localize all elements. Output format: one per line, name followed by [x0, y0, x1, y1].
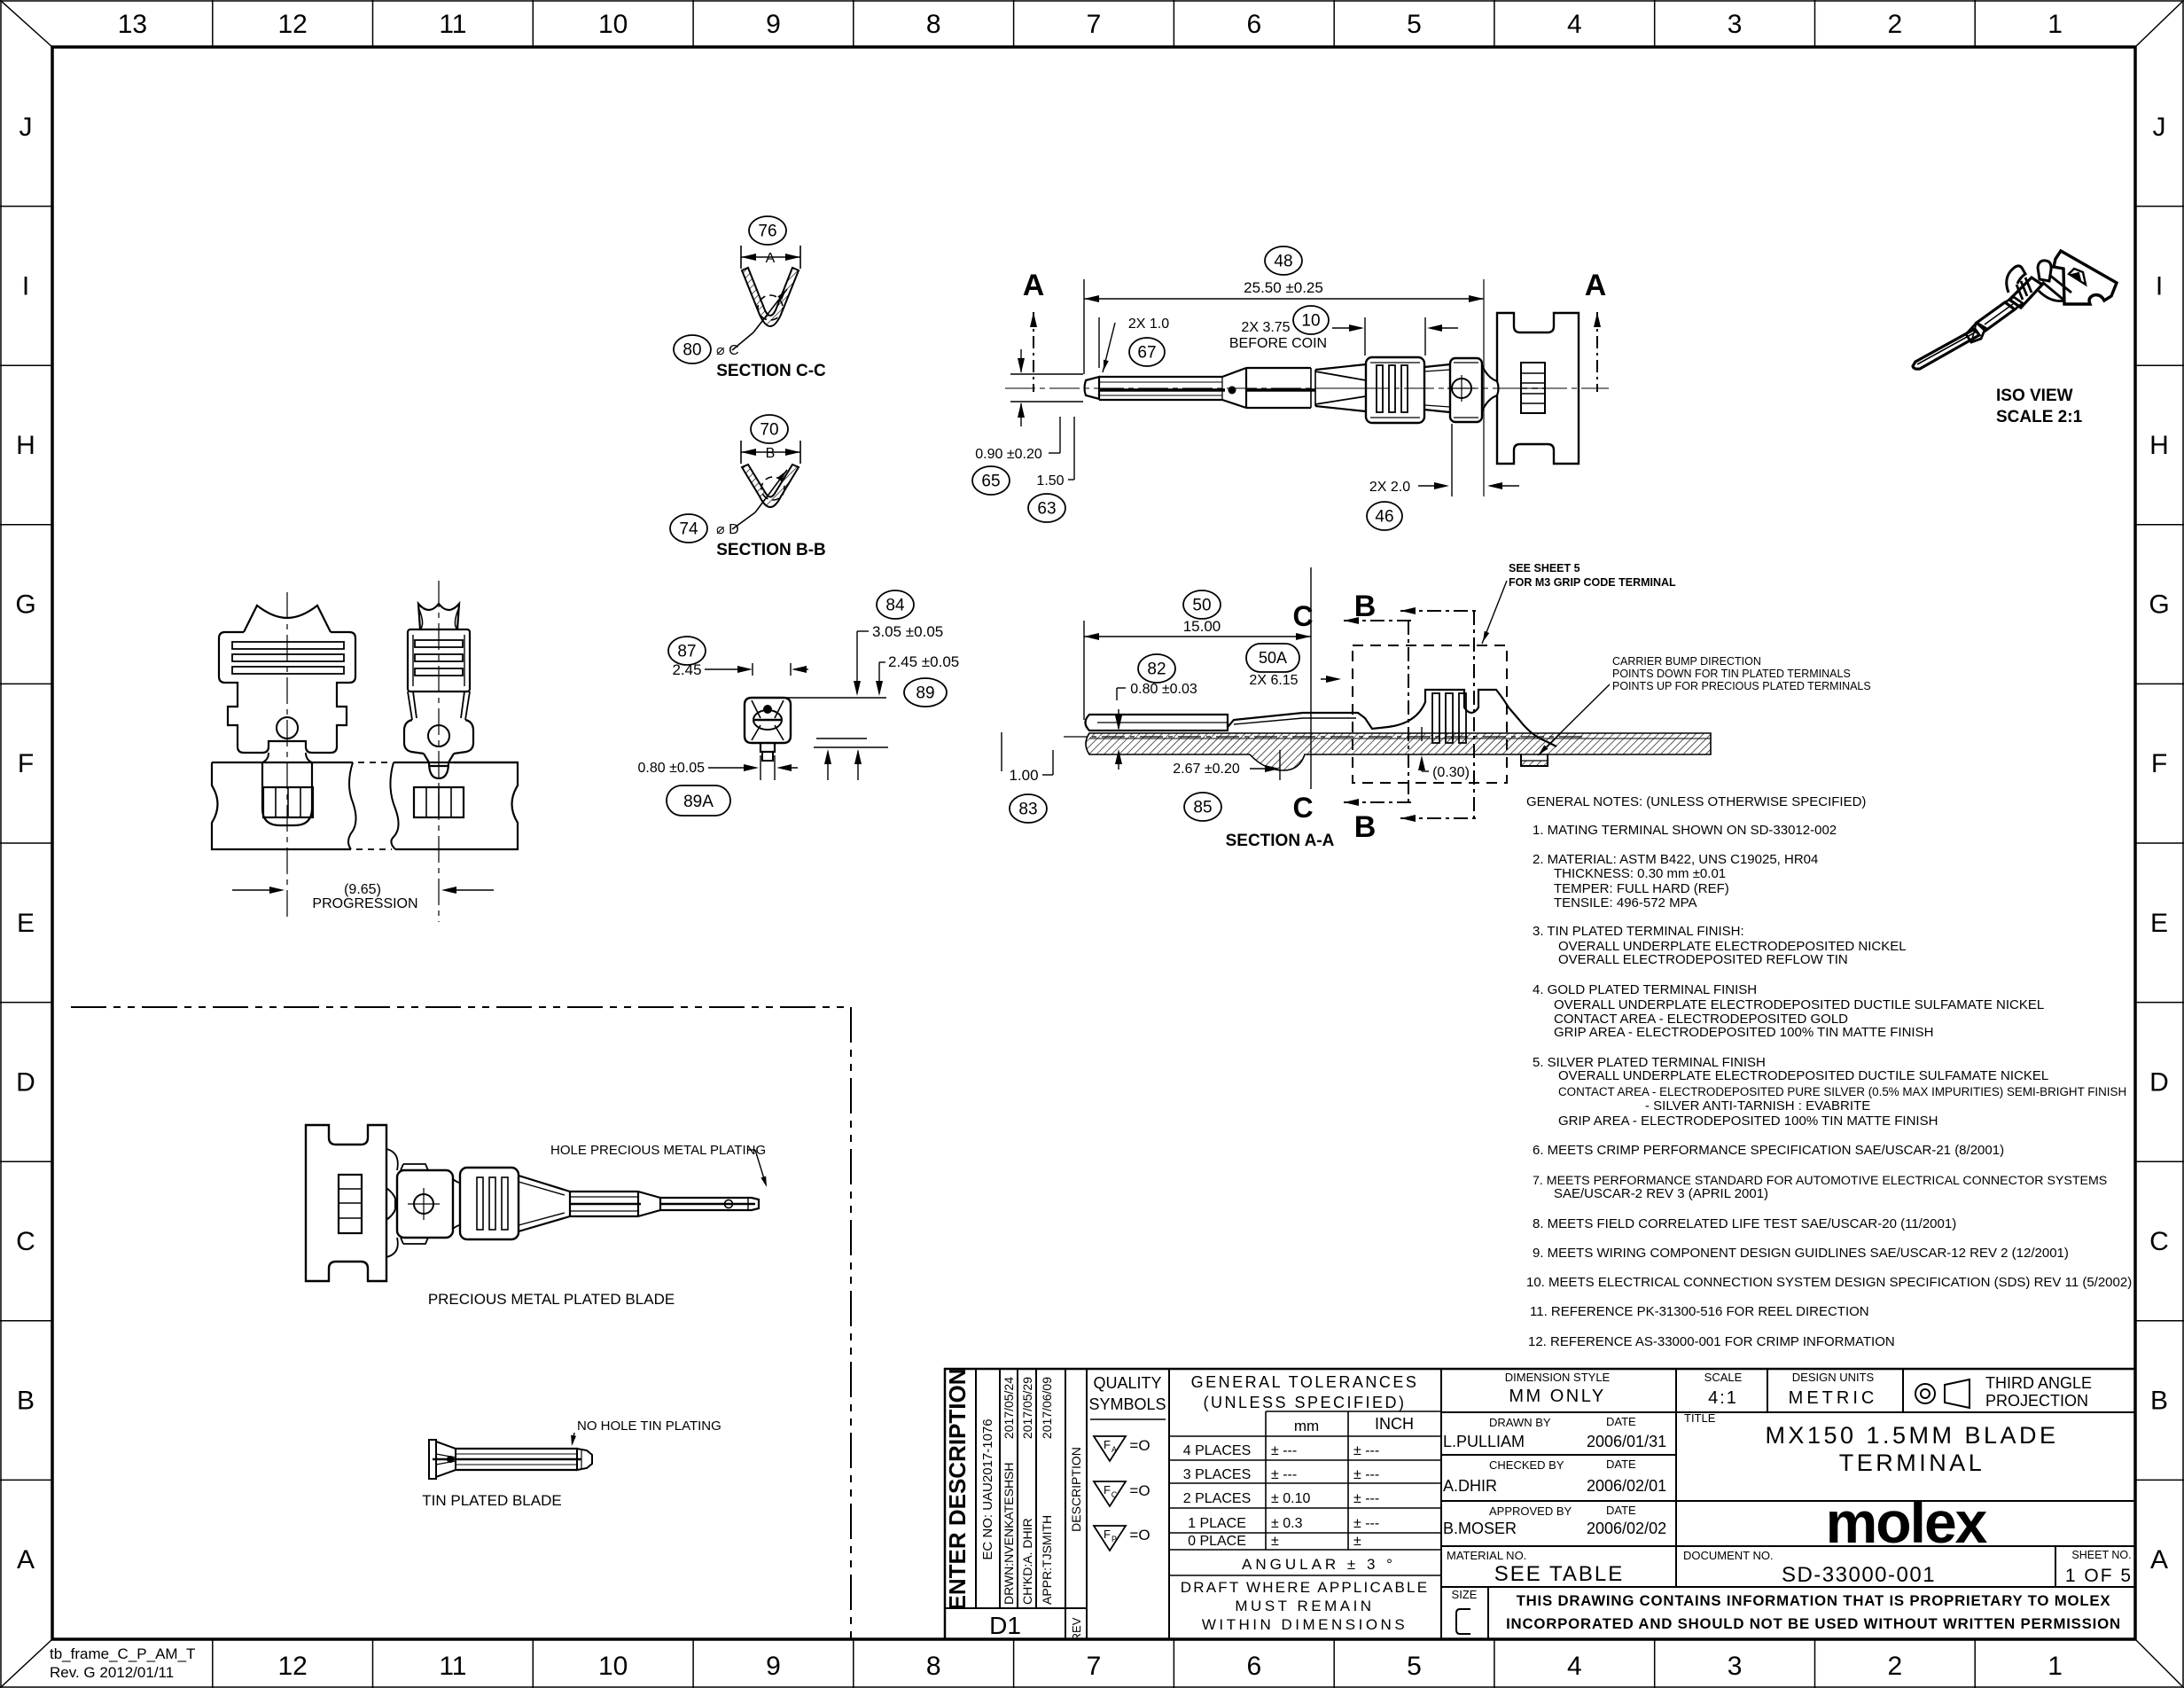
svg-text:H: H	[2149, 431, 2169, 460]
svg-text:D1: D1	[989, 1612, 1021, 1639]
svg-text:- SILVER ANTI-TARNISH : EVA: - SILVER ANTI-TARNISH : EVABRITE	[1645, 1098, 1870, 1114]
svg-text:DATE: DATE	[1606, 1457, 1636, 1471]
svg-text:11. REFERENCE PK-31300-516 FOR: 11. REFERENCE PK-31300-516 FOR REEL DIRE…	[1530, 1304, 1869, 1319]
svg-text:NO HOLE TIN PLATING: NO HOLE TIN PLATING	[577, 1418, 721, 1434]
svg-text:76: 76	[758, 223, 776, 241]
svg-text:2.45: 2.45	[672, 661, 701, 678]
svg-text:SECTION C-C: SECTION C-C	[716, 362, 826, 380]
svg-text:THIS DRAWING CONTAINS INFORMAT: THIS DRAWING CONTAINS INFORMATION THAT I…	[1517, 1592, 2111, 1609]
svg-text:⌀ D: ⌀ D	[716, 522, 739, 537]
svg-text:7: 7	[1087, 10, 1102, 39]
svg-text:DRAWN BY: DRAWN BY	[1489, 1416, 1551, 1429]
svg-text:65: 65	[981, 473, 1000, 491]
svg-text:F: F	[1104, 1528, 1111, 1541]
svg-text:(0.30): (0.30)	[1432, 765, 1470, 780]
svg-text:ISO VIEW: ISO VIEW	[1996, 387, 2073, 405]
svg-text:SD-33000-001: SD-33000-001	[1782, 1563, 1936, 1587]
svg-text:2017/05/24: 2017/05/24	[1002, 1377, 1016, 1439]
svg-text:± ---: ± ---	[1353, 1443, 1379, 1458]
svg-text:A: A	[2150, 1545, 2168, 1575]
svg-text:MX150 1.5MM BLADE: MX150 1.5MM BLADE	[1765, 1422, 2058, 1449]
svg-text:83: 83	[1018, 801, 1037, 819]
svg-text:2X 6.15: 2X 6.15	[1249, 673, 1298, 688]
svg-text:87: 87	[677, 643, 696, 661]
svg-text:10: 10	[1301, 312, 1320, 331]
svg-text:5: 5	[1407, 1652, 1422, 1681]
svg-text:CHECKED BY: CHECKED BY	[1489, 1458, 1564, 1472]
svg-text:POINTS UP FOR PRECIOUS PLATED: POINTS UP FOR PRECIOUS PLATED TERMINALS	[1612, 680, 1871, 692]
svg-text:J: J	[2153, 113, 2166, 142]
svg-text:2006/01/31: 2006/01/31	[1587, 1433, 1666, 1450]
svg-text:B: B	[2150, 1387, 2168, 1416]
svg-text:INCH: INCH	[1375, 1415, 1414, 1433]
svg-text:1: 1	[2047, 1652, 2063, 1681]
svg-text:± ---: ± ---	[1353, 1467, 1379, 1482]
svg-text:12. REFERENCE AS-33000-001 FOR: 12. REFERENCE AS-33000-001 FOR CRIMP INF…	[1528, 1334, 1895, 1349]
svg-text:TIN PLATED BLADE: TIN PLATED BLADE	[422, 1492, 561, 1509]
svg-text:DESIGN UNITS: DESIGN UNITS	[1792, 1371, 1875, 1384]
svg-text:D: D	[2149, 1067, 2169, 1097]
svg-text:74: 74	[679, 520, 698, 539]
svg-text:DESCRIPTION: DESCRIPTION	[1069, 1447, 1083, 1532]
svg-text:2: 2	[1887, 10, 1902, 39]
svg-text:DRWN:NVENKATESHSH: DRWN:NVENKATESHSH	[1002, 1462, 1016, 1605]
svg-text:QUALITY: QUALITY	[1093, 1374, 1161, 1392]
svg-text:10: 10	[598, 10, 628, 39]
svg-text:67: 67	[1137, 344, 1156, 363]
svg-text:50: 50	[1192, 597, 1211, 615]
svg-text:9: 9	[766, 10, 781, 39]
svg-text:ENTER DESCRIPTION: ENTER DESCRIPTION	[944, 1368, 971, 1610]
svg-text:B: B	[1354, 590, 1377, 623]
svg-text:CONTACT AREA - ELECTRODEPOSITE: CONTACT AREA - ELECTRODEPOSITED PURE SIL…	[1558, 1085, 2126, 1098]
svg-text:C: C	[1292, 792, 1313, 824]
svg-text:8. MEETS FIELD CORRELATED LIFE: 8. MEETS FIELD CORRELATED LIFE TEST SAE/…	[1533, 1216, 1956, 1231]
svg-text:3.05 ±0.05: 3.05 ±0.05	[872, 623, 943, 640]
svg-text:(UNLESS SPECIFIED): (UNLESS SPECIFIED)	[1203, 1394, 1406, 1411]
svg-text:⌀ C: ⌀ C	[716, 343, 739, 358]
svg-text:POINTS DOWN FOR TIN PLATED TER: POINTS DOWN FOR TIN PLATED TERMINALS	[1612, 668, 1851, 680]
svg-text:FOR M3 GRIP CODE TERMINAL: FOR M3 GRIP CODE TERMINAL	[1509, 576, 1676, 589]
svg-text:E: E	[17, 909, 35, 938]
svg-text:L.PULLIAM: L.PULLIAM	[1443, 1433, 1525, 1450]
svg-text:CH'KD:A. DHIR: CH'KD:A. DHIR	[1020, 1518, 1034, 1605]
svg-text:± 0.3: ± 0.3	[1271, 1516, 1303, 1531]
svg-text:B: B	[17, 1387, 35, 1416]
svg-text:84: 84	[885, 597, 905, 615]
svg-text:GRIP AREA - ELECTRODEPOSITED 1: GRIP AREA - ELECTRODEPOSITED 100% TIN MA…	[1554, 1025, 1933, 1040]
svg-text:DATE: DATE	[1606, 1415, 1636, 1428]
svg-text:1: 1	[2047, 10, 2063, 39]
svg-text:F: F	[1104, 1438, 1111, 1451]
svg-text:HOLE PRECIOUS METAL PLATING: HOLE PRECIOUS METAL PLATING	[550, 1143, 766, 1158]
svg-text:10. MEETS ELECTRICAL CONNECTIO: 10. MEETS ELECTRICAL CONNECTION SYSTEM D…	[1526, 1275, 2132, 1290]
svg-text:89: 89	[916, 684, 934, 703]
svg-text:MUST REMAIN: MUST REMAIN	[1235, 1598, 1374, 1614]
svg-text:50A: 50A	[1259, 649, 1287, 667]
svg-text:4: 4	[1567, 1652, 1582, 1681]
svg-text:(9.65): (9.65)	[344, 882, 381, 897]
svg-text:ANGULAR ± 3 °: ANGULAR ± 3 °	[1242, 1556, 1396, 1573]
svg-text:2006/02/01: 2006/02/01	[1587, 1477, 1666, 1495]
svg-text:25.50 ±0.25: 25.50 ±0.25	[1244, 279, 1323, 296]
svg-text:46: 46	[1375, 508, 1393, 527]
svg-text:PROGRESSION: PROGRESSION	[312, 896, 417, 911]
svg-text:SEE TABLE: SEE TABLE	[1494, 1562, 1625, 1586]
svg-text:1.50: 1.50	[1036, 473, 1064, 488]
svg-text:2X 1.0: 2X 1.0	[1128, 316, 1169, 332]
svg-text:± ---: ± ---	[1353, 1516, 1379, 1531]
svg-text:GRIP AREA - ELECTRODEPOSITED 1: GRIP AREA - ELECTRODEPOSITED 100% TIN MA…	[1558, 1114, 1938, 1129]
svg-text:7: 7	[1087, 1652, 1102, 1681]
svg-text:=O: =O	[1129, 1482, 1150, 1499]
svg-text:0 PLACE: 0 PLACE	[1188, 1534, 1246, 1549]
svg-text:± ---: ± ---	[1271, 1467, 1297, 1482]
svg-text:SYMBOLS: SYMBOLS	[1088, 1395, 1166, 1413]
svg-text:I: I	[22, 271, 29, 301]
svg-text:15.00: 15.00	[1183, 618, 1221, 635]
svg-text:0.90 ±0.20: 0.90 ±0.20	[975, 447, 1042, 462]
svg-text:Rev. G 2012/01/11: Rev. G 2012/01/11	[50, 1664, 174, 1681]
svg-text:C: C	[1292, 600, 1313, 632]
svg-text:B: B	[766, 446, 776, 461]
svg-text:12: 12	[278, 10, 308, 39]
svg-text:SCALE 2:1: SCALE 2:1	[1996, 408, 2083, 426]
svg-text:A.DHIR: A.DHIR	[1443, 1477, 1497, 1495]
svg-text:80: 80	[682, 341, 701, 360]
svg-text:±: ±	[1271, 1534, 1279, 1549]
svg-text:THIRD ANGLE: THIRD ANGLE	[1985, 1374, 2092, 1392]
svg-text:EC NO: UAU2017-1076: EC NO: UAU2017-1076	[980, 1418, 995, 1559]
svg-text:2017/05/29: 2017/05/29	[1020, 1377, 1034, 1439]
svg-text:WITHIN DIMENSIONS: WITHIN DIMENSIONS	[1202, 1616, 1408, 1633]
svg-text:C: C	[2149, 1227, 2169, 1256]
svg-text:=O: =O	[1129, 1527, 1150, 1543]
svg-text:3 PLACES: 3 PLACES	[1183, 1467, 1251, 1482]
svg-text:3: 3	[1728, 1652, 1743, 1681]
svg-text:OVERALL UNDERPLATE ELECTRODEPO: OVERALL UNDERPLATE ELECTRODEPOSITED DUCT…	[1558, 1068, 2048, 1083]
svg-text:tb_frame_C_P_AM_T: tb_frame_C_P_AM_T	[50, 1645, 195, 1662]
svg-text:B.MOSER: B.MOSER	[1443, 1520, 1517, 1537]
svg-text:DATE: DATE	[1606, 1504, 1636, 1517]
svg-text:G: G	[15, 590, 35, 620]
svg-text:63: 63	[1037, 500, 1056, 519]
svg-text:DRAFT WHERE APPLICABLE: DRAFT WHERE APPLICABLE	[1181, 1579, 1429, 1596]
svg-text:82: 82	[1147, 660, 1166, 679]
svg-text:4 PLACES: 4 PLACES	[1183, 1443, 1251, 1458]
svg-text:2.45 ±0.05: 2.45 ±0.05	[888, 653, 959, 670]
svg-text:GENERAL TOLERANCES: GENERAL TOLERANCES	[1191, 1373, 1419, 1391]
svg-text:SHEET NO.: SHEET NO.	[2071, 1549, 2131, 1561]
svg-text:SIZE: SIZE	[1452, 1588, 1478, 1601]
svg-text:2006/02/02: 2006/02/02	[1587, 1520, 1666, 1537]
svg-text:6: 6	[1246, 1652, 1261, 1681]
svg-text:F: F	[1104, 1483, 1111, 1497]
svg-text:D: D	[16, 1067, 35, 1097]
svg-text:SEE SHEET 5: SEE SHEET 5	[1509, 562, 1580, 574]
svg-text:mm: mm	[1294, 1418, 1319, 1434]
svg-text:F: F	[18, 749, 34, 778]
svg-text:2.67 ±0.20: 2.67 ±0.20	[1173, 762, 1240, 777]
svg-text:± ---: ± ---	[1271, 1443, 1297, 1458]
svg-text:REV: REV	[1070, 1617, 1083, 1641]
svg-text:2X 3.75: 2X 3.75	[1241, 320, 1290, 335]
svg-text:PROJECTION: PROJECTION	[1985, 1392, 2088, 1410]
svg-text:TENSILE: 496-572 MPA: TENSILE: 496-572 MPA	[1554, 895, 1696, 910]
svg-text:PRECIOUS METAL PLATED BLADE: PRECIOUS METAL PLATED BLADE	[428, 1291, 675, 1308]
svg-text:APPROVED BY: APPROVED BY	[1489, 1504, 1572, 1518]
svg-text:2: 2	[1887, 1652, 1902, 1681]
svg-text:12: 12	[278, 1652, 308, 1681]
svg-text:TEMPER: FULL HARD (REF): TEMPER: FULL HARD (REF)	[1554, 881, 1729, 896]
svg-text:A: A	[17, 1545, 35, 1575]
svg-text:OVERALL ELECTRODEPOSITED REFLO: OVERALL ELECTRODEPOSITED REFLOW TIN	[1558, 952, 1848, 967]
svg-text:OVERALL UNDERPLATE ELECTRODEPO: OVERALL UNDERPLATE ELECTRODEPOSITED DUCT…	[1554, 997, 2044, 1012]
svg-text:85: 85	[1193, 799, 1212, 817]
svg-text:GENERAL NOTES: (UNLESS OTHERWI: GENERAL NOTES: (UNLESS OTHERWISE SPECIFI…	[1526, 794, 1866, 809]
svg-text:TITLE: TITLE	[1684, 1411, 1716, 1425]
svg-text:J: J	[19, 113, 33, 142]
svg-text:C: C	[16, 1227, 35, 1256]
svg-text:4. GOLD PLATED TERMINAL FINISH: 4. GOLD PLATED TERMINAL FINISH	[1533, 982, 1757, 997]
svg-text:48: 48	[1274, 253, 1292, 271]
svg-text:MM ONLY: MM ONLY	[1509, 1387, 1605, 1406]
svg-text:BEFORE COIN: BEFORE COIN	[1229, 336, 1327, 351]
svg-text:THICKNESS: 0.30 mm ±0.01: THICKNESS: 0.30 mm ±0.01	[1554, 866, 1726, 881]
svg-text:P: P	[1111, 1535, 1117, 1543]
svg-text:8: 8	[926, 10, 941, 39]
svg-text:5: 5	[1407, 10, 1422, 39]
svg-text:=O: =O	[1129, 1437, 1150, 1454]
svg-text:2 PLACES: 2 PLACES	[1183, 1491, 1251, 1506]
svg-text:DOCUMENT NO.: DOCUMENT NO.	[1683, 1549, 1774, 1562]
svg-text:± ---: ± ---	[1353, 1491, 1379, 1506]
svg-text:6: 6	[1246, 10, 1261, 39]
svg-text:3. TIN PLATED TERMINAL FINISH:: 3. TIN PLATED TERMINAL FINISH:	[1533, 924, 1744, 939]
svg-text:I: I	[2156, 271, 2163, 301]
svg-text:B: B	[1354, 810, 1377, 844]
svg-text:11: 11	[439, 10, 466, 39]
svg-text:13: 13	[118, 10, 147, 39]
svg-text:2017/06/09: 2017/06/09	[1040, 1377, 1054, 1439]
svg-text:1.00: 1.00	[1009, 767, 1038, 784]
svg-text:1. MATING TERMINAL SHOWN ON SD: 1. MATING TERMINAL SHOWN ON SD-33012-002	[1533, 823, 1837, 838]
svg-text:1 PLACE: 1 PLACE	[1188, 1516, 1246, 1531]
svg-text:0.80 ±0.05: 0.80 ±0.05	[637, 761, 705, 776]
svg-text:SECTION B-B: SECTION B-B	[716, 541, 826, 559]
svg-text:2. MATERIAL: ASTM B422, UNS C1: 2. MATERIAL: ASTM B422, UNS C19025, HR04	[1533, 852, 1818, 867]
svg-text:4: 4	[1567, 10, 1582, 39]
svg-text:APPR:TJSMITH: APPR:TJSMITH	[1040, 1515, 1054, 1605]
svg-text:9. MEETS WIRING COMPONENT DESI: 9. MEETS WIRING COMPONENT DESIGN GUIDLIN…	[1533, 1246, 2069, 1261]
svg-text:SCALE: SCALE	[1704, 1371, 1743, 1384]
svg-text:6. MEETS CRIMP PERFORMANCE SPE: 6. MEETS CRIMP PERFORMANCE SPECIFICATION…	[1533, 1143, 2004, 1158]
svg-text:3: 3	[1728, 10, 1743, 39]
svg-text:C: C	[1111, 1490, 1118, 1499]
svg-text:SAE/USCAR-2 REV 3 (APRIL 2001): SAE/USCAR-2 REV 3 (APRIL 2001)	[1554, 1186, 1768, 1201]
svg-text:A: A	[766, 251, 776, 266]
svg-text:2X 2.0: 2X 2.0	[1369, 480, 1410, 495]
svg-text:molex: molex	[1826, 1489, 1988, 1555]
svg-text:89A: 89A	[683, 793, 714, 811]
svg-text:± 0.10: ± 0.10	[1271, 1491, 1310, 1506]
svg-text:E: E	[2150, 909, 2168, 938]
svg-text:1 OF 5: 1 OF 5	[2065, 1566, 2133, 1586]
svg-text:9: 9	[766, 1652, 781, 1681]
svg-text:SECTION A-A: SECTION A-A	[1226, 832, 1335, 850]
svg-text:4:1: 4:1	[1708, 1388, 1738, 1408]
svg-text:A: A	[1111, 1445, 1117, 1454]
svg-text:A: A	[1585, 269, 1607, 302]
svg-text:TERMINAL: TERMINAL	[1839, 1450, 1985, 1476]
svg-text:METRIC: METRIC	[1789, 1388, 1878, 1408]
svg-text:A: A	[1023, 269, 1045, 302]
svg-text:G: G	[2149, 590, 2169, 620]
svg-text:CARRIER BUMP DIRECTION: CARRIER BUMP DIRECTION	[1612, 655, 1761, 668]
svg-text:±: ±	[1353, 1534, 1361, 1549]
svg-text:INCORPORATED AND SHOULD NOT BE: INCORPORATED AND SHOULD NOT BE USED WITH…	[1506, 1615, 2121, 1632]
svg-text:11: 11	[439, 1652, 466, 1681]
svg-text:10: 10	[598, 1652, 628, 1681]
svg-text:70: 70	[760, 421, 778, 440]
svg-text:DIMENSION STYLE: DIMENSION STYLE	[1505, 1371, 1611, 1384]
svg-text:MATERIAL NO.: MATERIAL NO.	[1447, 1549, 1526, 1562]
svg-text:H: H	[16, 431, 35, 460]
svg-text:F: F	[2151, 749, 2167, 778]
svg-text:8: 8	[926, 1652, 941, 1681]
svg-text:0.80 ±0.03: 0.80 ±0.03	[1130, 682, 1197, 697]
